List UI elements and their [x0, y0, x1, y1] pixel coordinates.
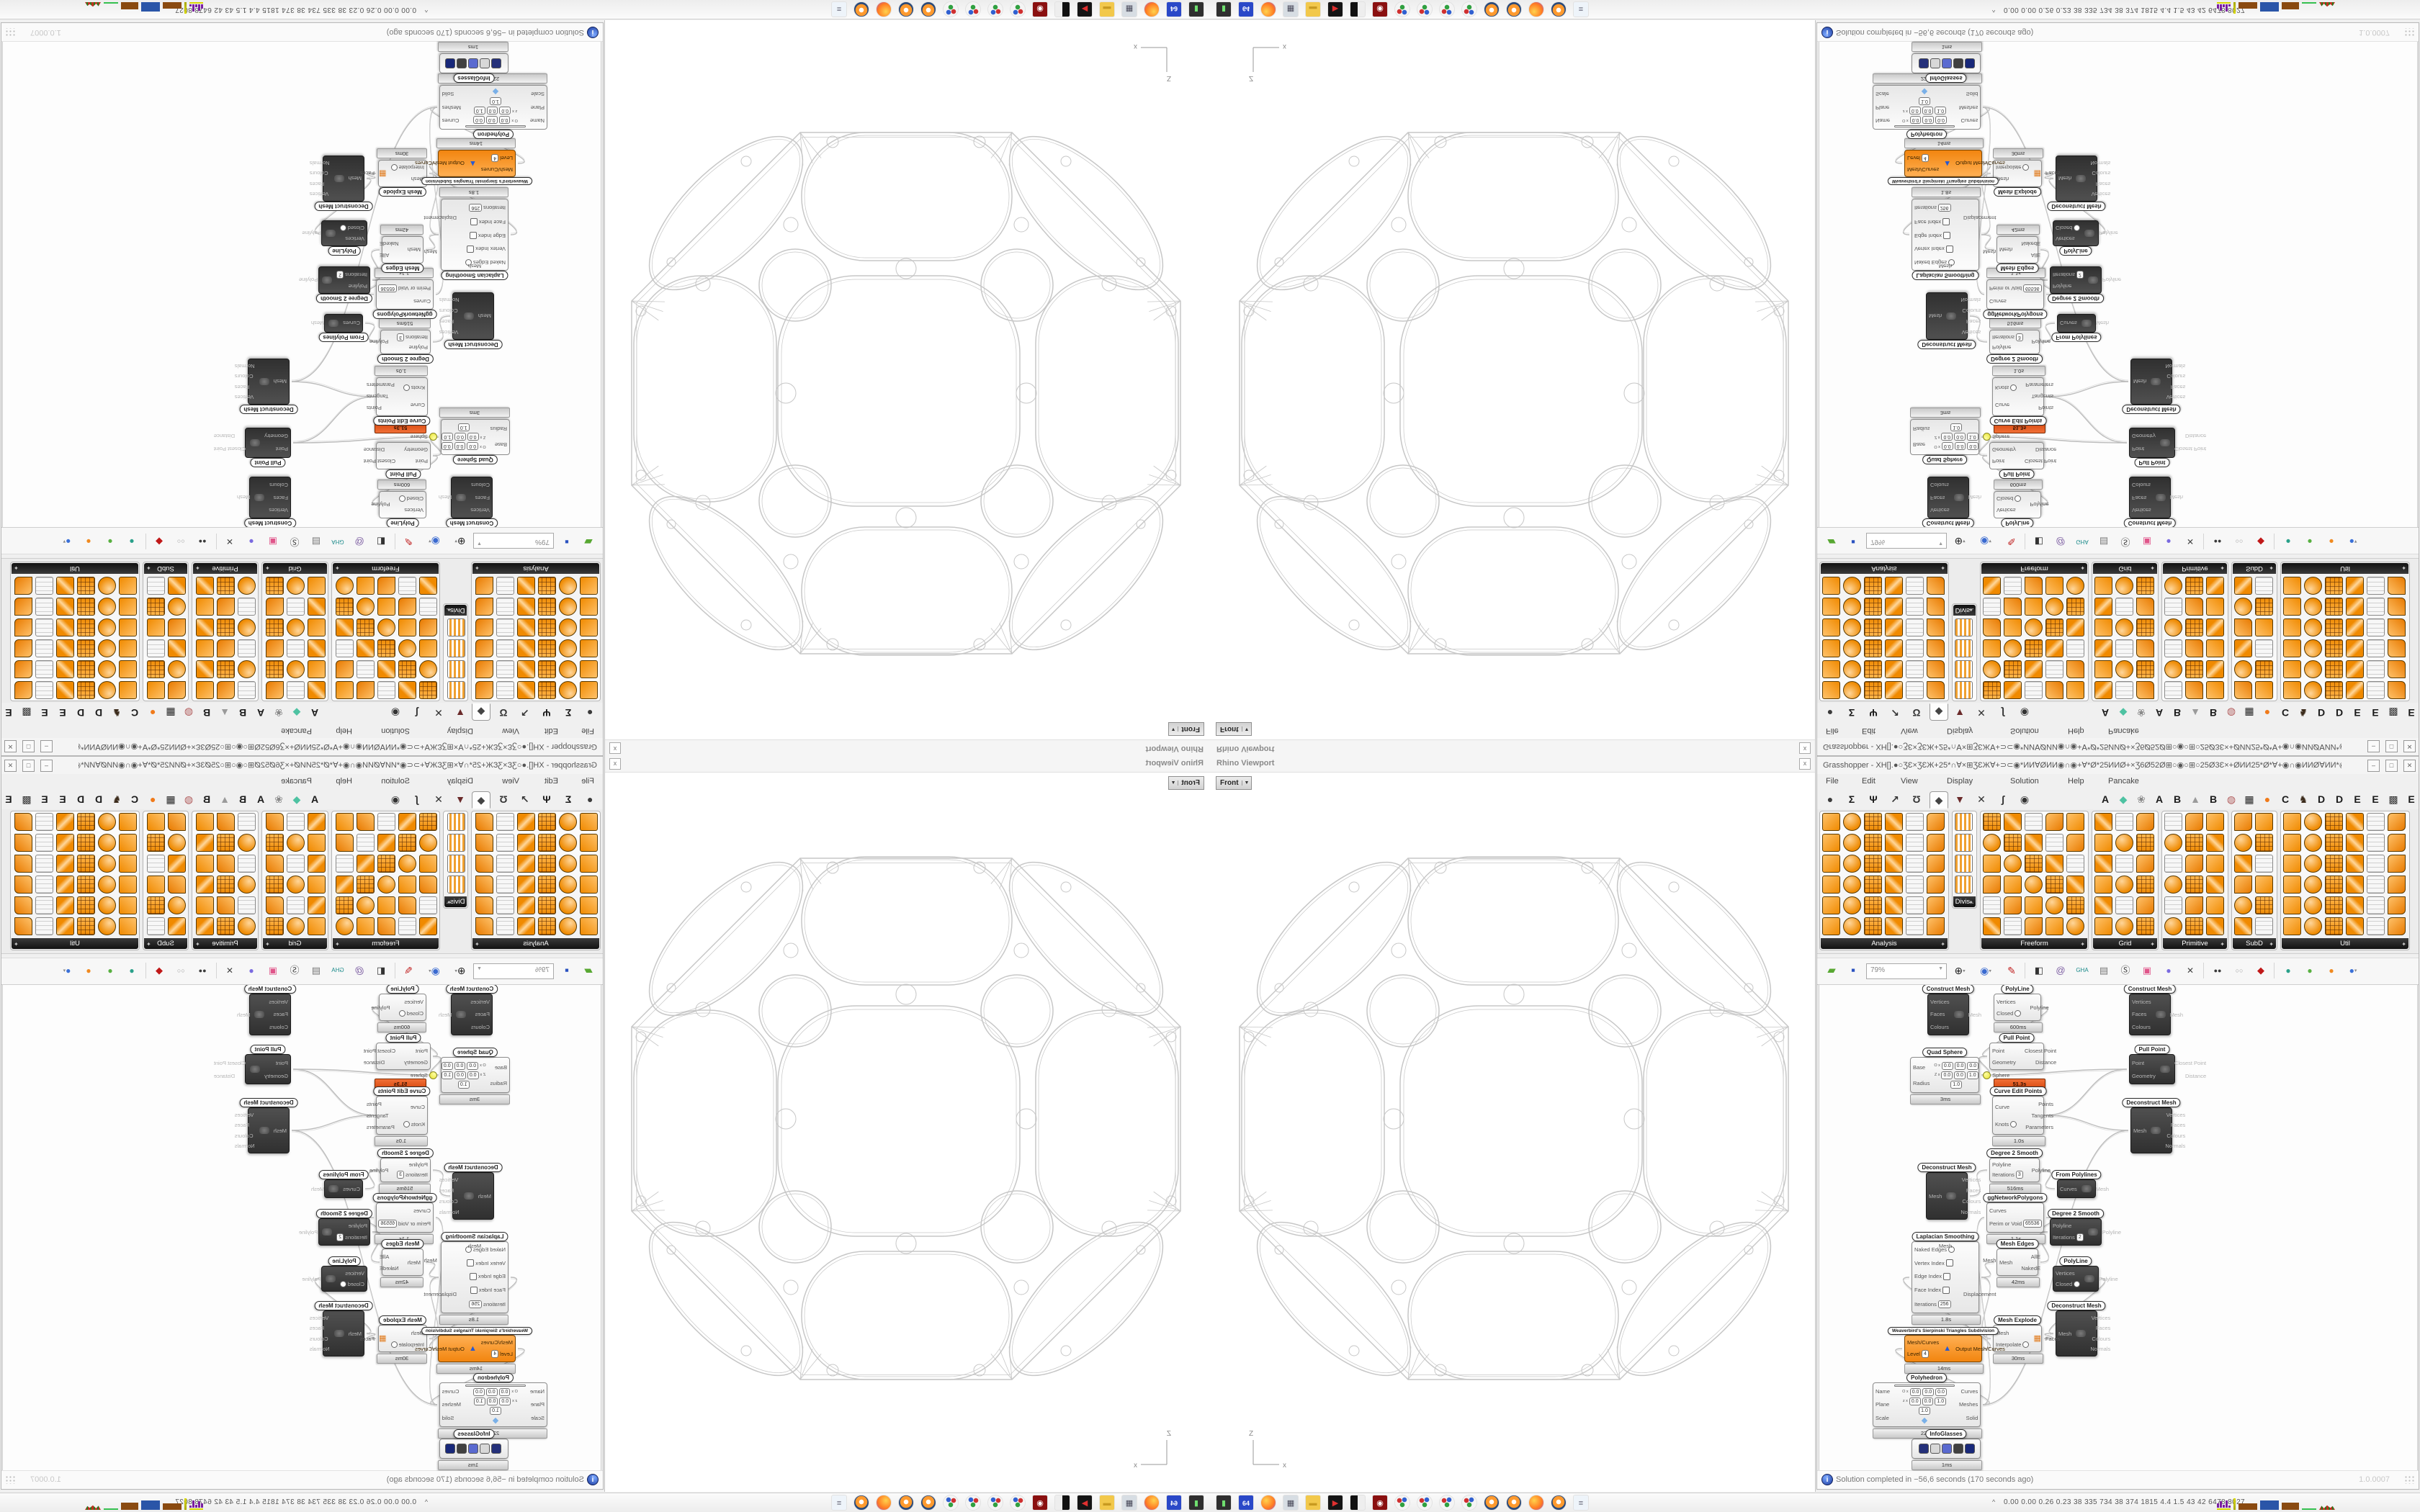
report-icon[interactable]: ▤: [2095, 962, 2112, 979]
tab-plugin-10[interactable]: C: [126, 705, 143, 721]
component-icon[interactable]: [147, 660, 165, 678]
component-icon[interactable]: [2025, 876, 2043, 894]
tab-intersect[interactable]: ▼: [1951, 791, 1968, 807]
minimize-icon[interactable]: –: [40, 760, 53, 772]
component-icon[interactable]: [2255, 660, 2273, 678]
checkbox-icon[interactable]: [1942, 1287, 1950, 1294]
value-field[interactable]: 1.0: [474, 1398, 485, 1405]
tab-plugin-1[interactable]: ◆: [2115, 791, 2132, 807]
mention-icon[interactable]: @: [351, 533, 368, 550]
input-port[interactable]: Faces: [1930, 495, 1945, 501]
component-icon[interactable]: [2325, 896, 2343, 914]
input-port[interactable]: Plane: [531, 104, 544, 111]
open-file-icon[interactable]: ▰: [1823, 962, 1840, 979]
checkbox-icon[interactable]: [1943, 1273, 1950, 1280]
graph-node[interactable]: VerticesClosedPolyline: [379, 994, 426, 1021]
output-port[interactable]: Faces: [310, 181, 324, 187]
zoom-level-combo[interactable]: 79%▼: [473, 963, 554, 979]
component-icon[interactable]: [357, 813, 375, 831]
component-icon[interactable]: [1843, 813, 1861, 831]
tab-plugin-16[interactable]: ▩: [2385, 705, 2402, 721]
output-port[interactable]: Closest Point: [214, 1060, 246, 1066]
component-icon[interactable]: [580, 681, 598, 699]
tab-plugin-0[interactable]: A: [306, 791, 323, 807]
value-field[interactable]: 3: [397, 1171, 404, 1179]
component-icon[interactable]: [2045, 896, 2063, 914]
component-icon[interactable]: [2283, 681, 2301, 699]
input-port[interactable]: Base: [1913, 442, 1925, 449]
output-port[interactable]: Colours: [310, 1336, 328, 1342]
toggle-icon[interactable]: [2015, 1010, 2021, 1017]
tab-plugin-5[interactable]: ▲: [216, 791, 233, 807]
component-icon[interactable]: [2234, 577, 2252, 595]
pin-teal-icon[interactable]: ●: [2280, 533, 2297, 550]
graph-node[interactable]: VerticesClosedPolyline: [2053, 220, 2099, 246]
value-field[interactable]: 0.0: [1935, 116, 1947, 124]
tab-display[interactable]: ʃ: [408, 791, 426, 807]
component-icon[interactable]: [2025, 834, 2043, 852]
component-icon[interactable]: [377, 917, 395, 935]
tray-expand-icon[interactable]: ^: [1992, 6, 1995, 14]
component-icon[interactable]: [1864, 577, 1882, 595]
panel-caption[interactable]: Analysis✦: [472, 938, 599, 949]
input-port[interactable]: Closed: [340, 1281, 364, 1287]
input-port[interactable]: Mesh/Curves: [1907, 1339, 1939, 1346]
panel-expand-icon[interactable]: ✦: [2080, 939, 2085, 950]
value-field[interactable]: 0.0: [442, 1062, 453, 1070]
maximize-icon[interactable]: □: [2385, 740, 2398, 752]
component-icon[interactable]: [2255, 917, 2273, 935]
calculator-icon[interactable]: ▦: [1283, 1495, 1299, 1511]
input-port[interactable]: Iterations2: [2053, 1233, 2084, 1241]
graph-node[interactable]: MeshNaked EdgesVertex IndexEdge IndexFac…: [441, 199, 508, 271]
component-icon[interactable]: [2346, 896, 2364, 914]
node-canvas[interactable]: Construct MeshVerticesFacesColoursMeshPo…: [2, 40, 601, 528]
component-icon[interactable]: [168, 855, 186, 873]
close-icon[interactable]: x: [609, 758, 621, 770]
component-icon[interactable]: [496, 618, 514, 636]
output-port[interactable]: Closest Point: [364, 459, 395, 465]
output-port[interactable]: Distance: [2185, 1073, 2206, 1079]
component-icon[interactable]: [1983, 896, 2001, 914]
component-icon[interactable]: [1983, 855, 2001, 873]
component-icon[interactable]: [2185, 813, 2203, 831]
component-icon[interactable]: [266, 834, 284, 852]
input-port[interactable]: Iterations256: [469, 204, 506, 212]
component-icon[interactable]: [1927, 618, 1945, 636]
component-icon[interactable]: [1822, 917, 1840, 935]
tab-display[interactable]: ʃ: [1994, 705, 2012, 721]
graph-node[interactable]: VerticesFacesColoursMesh: [249, 477, 291, 518]
component-icon[interactable]: [496, 660, 514, 678]
component-icon[interactable]: [2094, 618, 2112, 636]
component-icon[interactable]: [2325, 618, 2343, 636]
output-port[interactable]: Vertices: [235, 1112, 254, 1118]
output-port[interactable]: Normals: [1960, 297, 1981, 303]
tab-transform[interactable]: ✕: [430, 705, 447, 721]
value-field[interactable]: 0.0: [467, 1062, 478, 1070]
graph-node[interactable]: BaseRadiusO x0.00.00.0Z x0.00.01.01.0Sph…: [441, 1057, 510, 1093]
tab-plugin-8[interactable]: ▦: [162, 791, 179, 807]
component-icon[interactable]: [98, 813, 116, 831]
value-field[interactable]: 256: [1938, 1300, 1951, 1308]
folder-icon[interactable]: ▬: [1305, 1495, 1321, 1511]
component-icon[interactable]: [217, 917, 235, 935]
graph-node[interactable]: MeshVerticesFacesColoursNormals: [248, 1107, 290, 1153]
graph-node[interactable]: VerticesClosedPolyline: [379, 491, 426, 518]
input-port[interactable]: Mesh: [1999, 1259, 2012, 1266]
value-field[interactable]: 0.0: [454, 443, 466, 451]
graph-node[interactable]: PointGeometryClosest PointDistance: [245, 1054, 291, 1084]
component-icon[interactable]: [2367, 917, 2385, 935]
package-icon[interactable]: ▣: [2138, 962, 2156, 979]
component-icon[interactable]: [419, 855, 437, 873]
input-port[interactable]: Face Index: [1914, 218, 1950, 225]
input-port[interactable]: Scale: [1875, 1415, 1889, 1421]
tab-plugin-14[interactable]: E: [54, 705, 71, 721]
component-icon[interactable]: [559, 681, 577, 699]
component-icon[interactable]: [2094, 834, 2112, 852]
component-icon[interactable]: [287, 876, 305, 894]
component-icon[interactable]: [2367, 577, 2385, 595]
gem-icon[interactable]: ◆: [151, 962, 168, 979]
menu-edit[interactable]: Edit: [1862, 777, 1875, 786]
firefox-icon[interactable]: [876, 1, 892, 17]
component-icon[interactable]: [1955, 639, 1973, 657]
output-port[interactable]: Tangents: [367, 394, 388, 400]
ball-blue-icon[interactable]: ●▾: [58, 533, 76, 550]
component-icon[interactable]: [2164, 618, 2182, 636]
menu-edit[interactable]: Edit: [544, 726, 558, 735]
output-port[interactable]: Vertices: [439, 329, 459, 336]
spheres-dark-icon[interactable]: ●●: [194, 533, 211, 550]
component-icon[interactable]: [2025, 660, 2043, 678]
component-icon[interactable]: [2045, 618, 2063, 636]
output-port[interactable]: Distance: [2035, 447, 2056, 454]
grasshopper-titlebar[interactable]: Grasshopper - XH[].●○ƷƐ×ƷƐЖ+25*∩∀×⊞ƷƐЖ∀+…: [1, 738, 603, 755]
toggle-icon[interactable]: [399, 1010, 405, 1017]
value-field[interactable]: 1.0: [442, 433, 453, 441]
palette-icon[interactable]: [1394, 1495, 1410, 1511]
component-icon[interactable]: [2045, 813, 2063, 831]
component-icon[interactable]: [398, 876, 416, 894]
component-icon[interactable]: [1885, 855, 1903, 873]
tab-plugin-9[interactable]: ●: [2259, 705, 2276, 721]
pin-teal-icon[interactable]: ●: [123, 962, 140, 979]
component-icon[interactable]: [2283, 660, 2301, 678]
component-icon[interactable]: [287, 639, 305, 657]
panel-expand-icon[interactable]: ✦: [335, 562, 340, 573]
component-icon[interactable]: [77, 639, 95, 657]
input-port[interactable]: Vertices: [404, 999, 423, 1005]
value-field[interactable]: 1.0: [1935, 107, 1946, 114]
component-icon[interactable]: [2255, 896, 2273, 914]
component-icon[interactable]: [2234, 681, 2252, 699]
value-field[interactable]: 0.0: [1922, 1398, 1934, 1405]
chevron-down-icon[interactable]: ▾: [2354, 539, 2357, 544]
search-icon[interactable]: Ⓢ: [286, 962, 303, 979]
component-icon[interactable]: [308, 917, 326, 935]
tab-mesh[interactable]: ◆: [1930, 703, 1948, 721]
component-icon[interactable]: [2066, 813, 2084, 831]
component-icon[interactable]: [1822, 660, 1840, 678]
value-field[interactable]: 0.0: [1955, 443, 1966, 451]
component-icon[interactable]: [398, 896, 416, 914]
component-icon[interactable]: [196, 639, 214, 657]
component-icon[interactable]: [357, 577, 375, 595]
component-icon[interactable]: [2367, 896, 2385, 914]
tab-plugin-4[interactable]: B: [234, 705, 251, 721]
component-icon[interactable]: [119, 639, 137, 657]
output-port[interactable]: Faces: [235, 1122, 249, 1128]
output-port[interactable]: Colours: [439, 1198, 458, 1205]
maximize-icon[interactable]: □: [22, 760, 35, 772]
input-port[interactable]: Radius: [490, 1080, 507, 1086]
component-icon[interactable]: [538, 855, 556, 873]
value-field[interactable]: 1.0: [458, 1081, 470, 1089]
tab-plugin-15[interactable]: E: [2367, 705, 2384, 721]
zoom-level-combo[interactable]: 79%▼: [473, 533, 554, 549]
output-port[interactable]: Points: [2038, 1101, 2053, 1107]
component-icon[interactable]: [2185, 681, 2203, 699]
component-icon[interactable]: [580, 639, 598, 657]
component-icon[interactable]: [1906, 896, 1924, 914]
tab-plugin-9[interactable]: ●: [144, 791, 161, 807]
value-field[interactable]: 2: [336, 271, 344, 279]
tab-intersect[interactable]: ▼: [452, 705, 469, 721]
panel-caption[interactable]: Util✦: [2282, 938, 2408, 949]
output-port[interactable]: Points: [367, 405, 382, 412]
component-icon[interactable]: [2185, 618, 2203, 636]
component-icon[interactable]: [580, 834, 598, 852]
input-port[interactable]: Geometry: [2132, 1073, 2156, 1079]
component-icon[interactable]: [1843, 639, 1861, 657]
graph-node[interactable]: BaseRadiusO x0.00.00.0Z x0.00.01.01.0Sph…: [1910, 1057, 1979, 1093]
component-icon[interactable]: [1885, 834, 1903, 852]
component-icon[interactable]: [35, 639, 53, 657]
component-icon[interactable]: [2066, 598, 2084, 616]
value-field[interactable]: 2: [2076, 271, 2084, 279]
tab-plugin-2[interactable]: ❀: [2133, 791, 2150, 807]
tab-plugin-10[interactable]: C: [126, 791, 143, 807]
component-icon[interactable]: [147, 639, 165, 657]
component-icon[interactable]: [56, 598, 74, 616]
graph-node[interactable]: CurveKnotsPointsTangentsParameters: [1992, 1096, 2044, 1135]
tab-plugin-6[interactable]: B: [198, 705, 215, 721]
component-icon[interactable]: [2325, 577, 2343, 595]
red-disc-icon[interactable]: ◉: [1372, 1495, 1388, 1511]
component-icon[interactable]: [147, 598, 165, 616]
component-icon[interactable]: [35, 834, 53, 852]
component-icon[interactable]: [2367, 813, 2385, 831]
input-port[interactable]: Colours: [2132, 1024, 2151, 1030]
component-icon[interactable]: [196, 660, 214, 678]
mini-icon[interactable]: [480, 58, 490, 68]
component-icon[interactable]: [2304, 660, 2322, 678]
input-port[interactable]: Curves: [343, 1186, 360, 1192]
component-icon[interactable]: [196, 618, 214, 636]
component-icon[interactable]: [14, 577, 32, 595]
component-icon[interactable]: [2185, 855, 2203, 873]
node-canvas[interactable]: Construct MeshVerticesFacesColoursMeshPo…: [1819, 40, 2418, 528]
component-icon[interactable]: [1955, 618, 1973, 636]
open-file-icon[interactable]: ▰: [1823, 533, 1840, 550]
menu-pancake[interactable]: Pancake: [2108, 777, 2139, 786]
component-icon[interactable]: [447, 876, 465, 894]
palette-icon[interactable]: [965, 1, 981, 17]
toggle-icon[interactable]: [340, 225, 346, 231]
media-player-icon[interactable]: ▶: [1077, 1495, 1093, 1511]
output-port[interactable]: Polyline: [2032, 339, 2051, 346]
component-icon[interactable]: [2136, 813, 2154, 831]
output-port[interactable]: Parameters: [367, 382, 395, 389]
component-icon[interactable]: [2367, 834, 2385, 852]
component-icon[interactable]: [119, 660, 137, 678]
component-icon[interactable]: [580, 855, 598, 873]
output-port[interactable]: Faces: [1966, 1187, 1981, 1194]
component-icon[interactable]: [77, 681, 95, 699]
input-port[interactable]: Vertex Index: [1914, 246, 1953, 253]
mini-icon[interactable]: [491, 1444, 501, 1454]
component-icon[interactable]: [559, 896, 577, 914]
component-icon[interactable]: [2136, 639, 2154, 657]
output-port[interactable]: Colours: [2092, 1336, 2110, 1342]
component-icon[interactable]: [217, 813, 235, 831]
component-icon[interactable]: [517, 639, 535, 657]
component-icon[interactable]: [2115, 813, 2133, 831]
component-icon[interactable]: [1885, 813, 1903, 831]
spheres-dark-icon[interactable]: ●●: [2209, 962, 2226, 979]
output-port[interactable]: Faces: [360, 171, 375, 177]
folder-icon[interactable]: ▬: [1099, 1, 1115, 17]
value-field[interactable]: 0.0: [1954, 433, 1966, 441]
graph-node[interactable]: MeshVerticesFacesColoursNormals: [452, 1172, 494, 1220]
component-icon[interactable]: [238, 681, 256, 699]
component-icon[interactable]: [2164, 681, 2182, 699]
pin-green-icon[interactable]: ●: [102, 962, 119, 979]
component-icon[interactable]: [2388, 598, 2406, 616]
output-port[interactable]: Output Mesh/Curves: [415, 161, 465, 167]
output-port[interactable]: Meshes: [1959, 104, 1978, 111]
component-icon[interactable]: [538, 876, 556, 894]
grasshopper-titlebar[interactable]: Grasshopper - XH[].●○ƷƐ×ƷƐЖ+25*∩∀×⊞ƷƐЖ∀+…: [1817, 757, 2419, 774]
component-icon[interactable]: [2255, 598, 2273, 616]
component-icon[interactable]: [168, 598, 186, 616]
component-icon[interactable]: [377, 598, 395, 616]
component-icon[interactable]: [2045, 598, 2063, 616]
component-icon[interactable]: [308, 896, 326, 914]
component-icon[interactable]: [1822, 639, 1840, 657]
tab-kangaroo[interactable]: ◉: [2016, 705, 2033, 721]
input-port[interactable]: Mesh: [2133, 379, 2146, 385]
output-port[interactable]: Closest Point: [2025, 1048, 2056, 1054]
component-icon[interactable]: [1843, 896, 1861, 914]
component-icon[interactable]: [419, 876, 437, 894]
value-field[interactable]: 0.0: [454, 1062, 466, 1070]
mention-icon[interactable]: @: [2052, 962, 2069, 979]
component-icon[interactable]: [2283, 577, 2301, 595]
mini-icon[interactable]: [491, 58, 501, 68]
chevron-down-icon[interactable]: ▾: [1989, 968, 1991, 973]
output-port[interactable]: Polyline: [302, 1276, 321, 1282]
component-icon[interactable]: [398, 855, 416, 873]
value-field[interactable]: 3: [2016, 333, 2023, 341]
output-port[interactable]: Mesh: [424, 248, 437, 255]
component-icon[interactable]: [287, 660, 305, 678]
component-icon[interactable]: [1885, 598, 1903, 616]
component-icon[interactable]: [287, 813, 305, 831]
panel-caption[interactable]: Analysis✦: [472, 563, 599, 574]
component-icon[interactable]: [287, 618, 305, 636]
panel-expand-icon[interactable]: ✦: [2401, 939, 2406, 950]
component-icon[interactable]: [377, 618, 395, 636]
component-icon[interactable]: [1843, 618, 1861, 636]
component-icon[interactable]: [308, 660, 326, 678]
component-icon[interactable]: [2206, 876, 2224, 894]
component-icon[interactable]: [196, 917, 214, 935]
value-field[interactable]: 0.0: [487, 1398, 498, 1405]
component-icon[interactable]: [217, 896, 235, 914]
tab-plugin-11[interactable]: ♞: [2295, 791, 2312, 807]
input-port[interactable]: Curves: [2060, 1186, 2077, 1192]
component-icon[interactable]: [287, 598, 305, 616]
mini-icon[interactable]: [1953, 58, 1963, 68]
graph-node[interactable]: CurvesPerim or Void65536Cells: [1986, 279, 2044, 310]
component-icon[interactable]: [2206, 660, 2224, 678]
component-icon[interactable]: [196, 577, 214, 595]
component-icon[interactable]: [238, 577, 256, 595]
pin-green-icon[interactable]: ●: [102, 533, 119, 550]
component-icon[interactable]: [517, 660, 535, 678]
close-icon[interactable]: x: [1799, 742, 1811, 754]
tab-plugin-1[interactable]: ◆: [288, 791, 305, 807]
component-icon[interactable]: [266, 618, 284, 636]
input-port[interactable]: Colours: [1930, 482, 1949, 488]
palette-icon[interactable]: [965, 1495, 981, 1511]
component-icon[interactable]: [238, 917, 256, 935]
input-port[interactable]: Iterations256: [1914, 204, 1951, 212]
value-field[interactable]: 4: [1922, 154, 1929, 162]
component-icon[interactable]: [98, 598, 116, 616]
component-icon[interactable]: [266, 577, 284, 595]
blender-icon[interactable]: [898, 1495, 914, 1511]
value-field[interactable]: 2: [2076, 1233, 2084, 1241]
panel-caption[interactable]: Grid✦: [2093, 938, 2157, 949]
close-icon[interactable]: ✕: [4, 740, 17, 752]
graph-node[interactable]: PolylineIterations2Polyline: [2050, 266, 2102, 294]
component-icon[interactable]: [517, 813, 535, 831]
output-port[interactable]: Mesh: [1983, 248, 1996, 255]
viewport-canvas[interactable]: Zx: [604, 772, 1210, 1492]
component-icon[interactable]: [35, 876, 53, 894]
component-icon[interactable]: [2115, 896, 2133, 914]
component-icon[interactable]: [2304, 813, 2322, 831]
tab-plugin-3[interactable]: A: [2151, 791, 2168, 807]
menu-file[interactable]: File: [1826, 726, 1839, 735]
maximize-icon[interactable]: □: [2385, 760, 2398, 772]
input-port[interactable]: Point: [2132, 446, 2144, 453]
output-port[interactable]: Faces: [2096, 181, 2110, 187]
graph-node[interactable]: MeshAllENakedE: [1996, 1248, 2038, 1276]
output-port[interactable]: AllE: [2031, 253, 2040, 259]
output-port[interactable]: Polyline: [2102, 1229, 2121, 1236]
input-port[interactable]: Vertices: [470, 507, 490, 513]
input-port[interactable]: Mesh: [408, 247, 421, 253]
value-field[interactable]: 0.0: [486, 116, 498, 124]
component-icon[interactable]: [1822, 598, 1840, 616]
component-icon[interactable]: [98, 876, 116, 894]
output-port[interactable]: Vertices: [2092, 1315, 2111, 1321]
